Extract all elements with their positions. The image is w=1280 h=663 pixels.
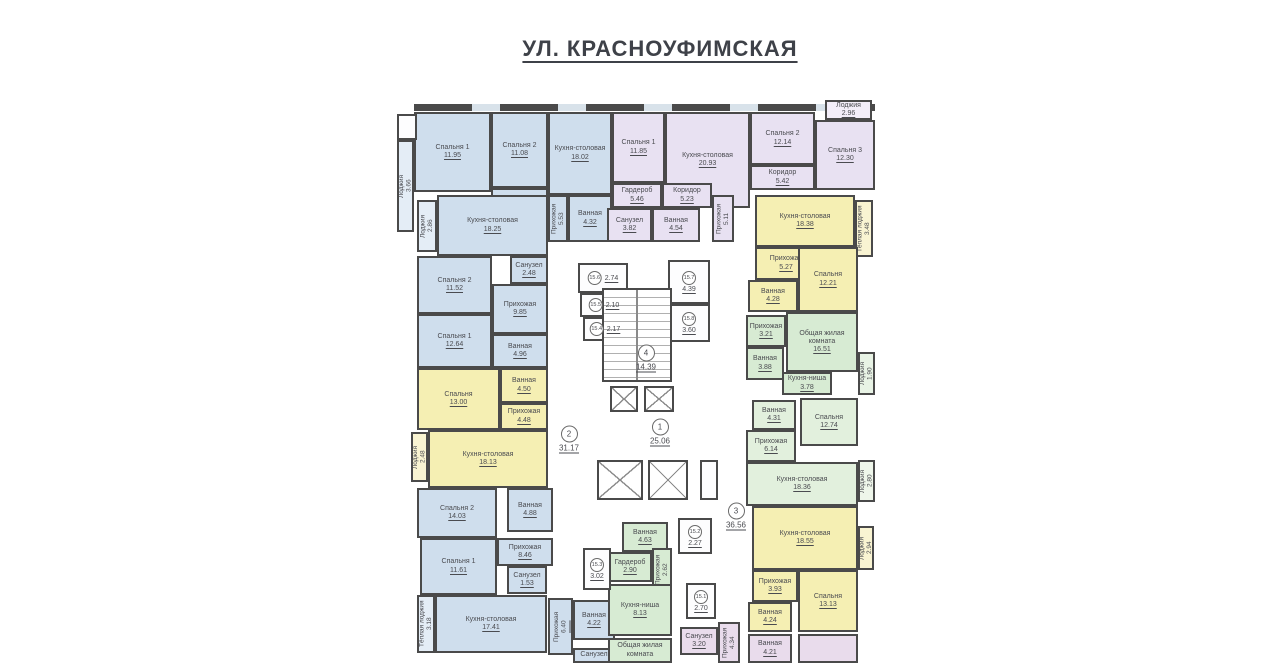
unit-number-circle: 15.8 (682, 312, 696, 326)
room: Тёплая лоджия3.18 (417, 595, 435, 653)
room-name: Прихожая (508, 408, 540, 416)
room-area: 8.13 (633, 610, 647, 618)
room-area: 2.48 (420, 451, 427, 464)
room-label: Кухня-ниша8.13 (610, 586, 670, 634)
room-area: 4.48 (517, 417, 531, 425)
room-label: Коридор5.42 (752, 167, 813, 188)
room-name: Тёплая лоджия (419, 601, 426, 647)
room-label: Прихожая3.21 (748, 317, 784, 345)
room-label: Коридор5.23 (664, 185, 710, 206)
room-label: Кухня-столовая17.41 (437, 597, 545, 651)
room-label: Прихожая3.93 (754, 572, 796, 600)
room-label: Ванная4.21 (750, 636, 790, 661)
room-area: 11.85 (630, 148, 647, 156)
room-area: 3.78 (800, 384, 814, 392)
unit-area-value: 31.17 (559, 444, 579, 453)
room-name: Спальня (815, 414, 843, 422)
storeroom (700, 460, 718, 500)
room-label: Спальня 111.95 (416, 114, 489, 190)
room-name: Ванная (518, 502, 542, 510)
room-area: 17.41 (482, 624, 500, 632)
unit-area-value: 14.39 (636, 363, 656, 372)
room: Ванная4.31 (752, 400, 796, 430)
unit-number-marker: 15.33.02 (590, 558, 604, 580)
room: Санузел3.82 (607, 208, 652, 242)
room-label: Кухня-столовая18.02 (550, 114, 610, 193)
room-label: Прихожая5.11 (714, 197, 732, 240)
room-label: Санузел2.48 (512, 258, 546, 282)
room-area: 4.28 (766, 296, 780, 304)
room-area: 4.54 (669, 225, 683, 233)
room-label: Ванная4.31 (754, 402, 794, 428)
unit-number-circle: 15.5 (589, 298, 603, 312)
room-area: 14.03 (448, 513, 466, 521)
room: Лоджия3.66 (397, 140, 414, 232)
unit-number-circle: 15.7 (682, 271, 696, 285)
room-name: Прихожая (755, 438, 787, 446)
room-name: Ванная (762, 407, 786, 415)
room: Прихожая3.21 (746, 315, 786, 347)
room: Прихожая4.48 (500, 403, 548, 430)
room-name: Тёплая лоджия (857, 205, 864, 251)
room-name: Прихожая (759, 578, 791, 586)
unit-number-marker: 414.39 (636, 345, 656, 372)
room-area: 2.90 (623, 567, 637, 575)
room: Коридор5.23 (662, 183, 712, 208)
room-name: Лоджия (836, 102, 861, 110)
room-label: Кухня-столовая18.36 (748, 464, 856, 504)
elevator-shaft-icon (648, 460, 688, 500)
room-name: Лоджия (859, 362, 866, 385)
elevator-shaft-icon (597, 460, 643, 500)
room-area: 2.86 (427, 220, 434, 233)
unit-area-value: 2.70 (694, 605, 708, 612)
room: Коридор5.42 (750, 165, 815, 190)
unit-number-circle: 15.2 (688, 525, 702, 539)
room: Лоджия2.94 (858, 526, 874, 570)
room-label: Общая жилая комната (610, 640, 670, 661)
room: Лоджия1.90 (858, 352, 875, 395)
unit-number-circle: 2 (561, 426, 578, 443)
unit-number-circle: 15.3 (590, 558, 604, 572)
room-label: Лоджия2.80 (860, 462, 873, 500)
room: Гардероб5.46 (612, 183, 662, 208)
room-label: Прихожая9.85 (494, 286, 546, 332)
room-name: Коридор (769, 169, 797, 177)
room-area: 3.66 (406, 180, 413, 193)
room-label: Кухня-столовая18.55 (754, 508, 856, 568)
room: Прихожая6.14 (746, 430, 796, 462)
room-label: Спальня 112.64 (419, 316, 490, 366)
room-area: 18.02 (571, 154, 589, 162)
room-name: Санузел (616, 217, 643, 225)
room-label: Спальня 212.14 (752, 114, 813, 163)
room-area: 4.88 (523, 510, 537, 518)
room-name: Спальня (814, 593, 842, 601)
room-area: 8.46 (518, 552, 532, 560)
room-name: Спальня 2 (766, 130, 800, 138)
room-name: Кухня-столовая (555, 145, 606, 153)
room-label: Ванная4.54 (654, 210, 698, 240)
room-label: Тёплая лоджия3.18 (419, 597, 433, 651)
room-name: Ванная (758, 609, 782, 617)
room-name: Ванная (758, 640, 782, 648)
room-area: 12.74 (820, 422, 838, 430)
room: Спальня13.00 (417, 368, 500, 430)
room: Общая жилая комната (608, 638, 672, 663)
room-area: 11.08 (511, 150, 528, 158)
room-name: Ванная (753, 355, 777, 363)
room: Ванная4.28 (748, 280, 798, 312)
room-name: Ванная (761, 288, 785, 296)
room-label: Спальня12.74 (802, 400, 856, 444)
room: Спальня 211.08 (491, 112, 548, 188)
room-name: Лоджия (398, 174, 405, 197)
room-area: 4.63 (638, 537, 652, 545)
room-name: Ванная (633, 529, 657, 537)
room: Ванная4.24 (748, 602, 792, 632)
unit-number-circle: 15.6 (588, 271, 602, 285)
room: Гардероб2.90 (608, 552, 652, 582)
room-area: 12.14 (774, 139, 792, 147)
room-name: Кухня-ниша (788, 375, 826, 383)
room-label: Спальня 111.85 (614, 114, 663, 181)
room-name: Санузел (513, 572, 540, 580)
room-name: Кухня-столовая (780, 530, 831, 538)
room-name: Прихожая (750, 323, 782, 331)
room-name: Спальня 2 (503, 142, 537, 150)
room: Прихожая5.11 (712, 195, 734, 242)
room-label: Лоджия2.96 (827, 102, 870, 118)
room-name: Ванная (508, 343, 532, 351)
unit-area-value: 36.56 (726, 521, 746, 530)
unit-number-marker: 231.17 (559, 426, 579, 453)
room: Кухня-столовая17.41 (435, 595, 547, 653)
room: Кухня-столовая18.36 (746, 462, 858, 506)
room-label: Ванная4.88 (509, 490, 551, 530)
room: Ванная4.88 (507, 488, 553, 532)
room: Кухня-ниша3.78 (782, 372, 832, 395)
room-name: Кухня-столовая (466, 616, 517, 624)
room-area: 12.21 (819, 280, 837, 288)
room-label: Спальня 312.30 (817, 122, 873, 188)
elevator-shaft-icon (610, 386, 638, 412)
room-area: 4.31 (767, 415, 781, 423)
room-patch (397, 114, 417, 140)
room: Ванная4.96 (492, 334, 548, 368)
room-label: Прихожая6.14 (748, 432, 794, 460)
unit-number-marker: 15.83.60 (682, 312, 696, 334)
room-name: Ванная (582, 612, 606, 620)
unit-area-value: 2.17 (607, 326, 621, 333)
room-label: Ванная4.63 (624, 524, 666, 550)
room-area: 5.53 (558, 212, 565, 225)
room-label: Прихожая8.46 (499, 540, 551, 564)
room-name: Санузел (515, 262, 542, 270)
room-name: Общая жилая комната (611, 642, 669, 658)
room-area: 11.95 (444, 152, 461, 160)
room-label: Кухня-столовая18.38 (757, 197, 853, 245)
room-name: Кухня-столовая (780, 213, 831, 221)
room-label: Кухня-столовая18.25 (439, 197, 546, 254)
room: Кухня-столовая18.02 (548, 112, 612, 195)
floor-plan-page: УЛ. КРАСНОУФИМСКАЯ Лоджия3.66Спальня 111… (0, 0, 1280, 663)
room-area: 20.93 (699, 160, 717, 168)
room: Ванная4.50 (500, 368, 548, 403)
room-name: Лоджия (859, 469, 866, 492)
room: Спальня13.13 (798, 570, 858, 632)
room-name: Лоджия (412, 445, 419, 468)
floor-plan: Лоджия3.66Спальня 111.95Спальня 211.08Ку… (0, 0, 1280, 663)
room-area: 3.82 (623, 225, 637, 233)
room-area: 13.00 (450, 399, 468, 407)
unit-number-marker: 15.74.39 (682, 271, 696, 293)
room-name: Кухня-столовая (682, 152, 733, 160)
room-name: Гардероб (622, 187, 653, 195)
unit-number-marker: 336.56 (726, 503, 746, 530)
unit-number-marker: 15.42.17 (590, 322, 621, 336)
room-patch (798, 634, 858, 663)
room-area: 4.22 (587, 620, 601, 628)
room-area: 3.93 (768, 586, 782, 594)
room-name: Спальня 2 (438, 277, 472, 285)
unit-number-marker: 15.52.10 (589, 298, 620, 312)
room-name: Гардероб (615, 559, 646, 567)
room-name: Спальня (814, 271, 842, 279)
room-area: 1.53 (520, 580, 534, 588)
room-area: 5.23 (680, 196, 694, 204)
room: Кухня-столовая18.55 (752, 506, 858, 570)
room: Санузел1.53 (507, 566, 547, 594)
room-name: Прихожая (553, 611, 560, 641)
room-label: Спальня12.21 (800, 249, 856, 310)
room-area: 18.25 (484, 226, 502, 234)
elevator-shaft-icon (644, 386, 674, 412)
unit-area-value: 4.39 (682, 286, 696, 293)
room-label: Общая жилая комната16.51 (788, 314, 856, 370)
room-area: 13.13 (819, 601, 837, 609)
room-label: Спальня13.00 (419, 370, 498, 428)
room-area: 1.90 (867, 367, 874, 380)
room: Прихожая4.34 (718, 622, 740, 663)
room-name: Кухня-ниша (621, 602, 659, 610)
room-area: 4.34 (729, 636, 736, 649)
unit-number-circle: 3 (728, 503, 745, 520)
room-area: 3.20 (692, 641, 706, 649)
room-name: Санузел (685, 633, 712, 641)
room-area: 9.85 (513, 309, 527, 317)
room-name: Кухня-столовая (463, 451, 514, 459)
room-label: Спальня 211.08 (493, 114, 546, 186)
room: Лоджия2.48 (411, 432, 428, 482)
room-label: Прихожая6.40 (550, 600, 571, 653)
room-label: Лоджия3.66 (399, 142, 412, 230)
room-label: Кухня-столовая18.13 (430, 432, 546, 486)
room-area: 2.62 (662, 564, 669, 577)
room-name: Коридор (673, 187, 701, 195)
room: Санузел2.48 (510, 256, 548, 284)
room-area: 4.96 (513, 351, 527, 359)
room-label: Лоджия2.48 (413, 434, 426, 480)
room-area: 2.48 (522, 270, 536, 278)
room: Спальня 312.30 (815, 120, 875, 190)
room-name: Спальня 3 (828, 147, 862, 155)
unit-number-marker: 15.22.27 (688, 525, 702, 547)
room-label: Санузел1.53 (509, 568, 545, 592)
room: Прихожая6.40 (548, 598, 573, 655)
room-area: 2.96 (842, 110, 856, 118)
room: Спальня 211.52 (417, 256, 492, 314)
room: Лоджия2.86 (417, 200, 437, 252)
room: Кухня-столовая18.13 (428, 430, 548, 488)
room-area: 4.50 (517, 386, 531, 394)
room-label: Ванная4.24 (750, 604, 790, 630)
room-name: Спальня 1 (442, 558, 476, 566)
unit-number-circle: 15.1 (694, 590, 708, 604)
room-label: Лоджия1.90 (860, 354, 873, 393)
unit-area-value: 2.27 (688, 540, 702, 547)
unit-area-value: 25.06 (650, 437, 670, 446)
room-label: Ванная4.96 (494, 336, 546, 366)
room-name: Прихожая (722, 627, 729, 657)
room-area: 6.40 (561, 620, 568, 633)
room-name: Прихожая (655, 555, 662, 585)
room-area: 4.32 (583, 219, 597, 227)
room-label: Прихожая4.34 (720, 624, 738, 661)
room-label: Лоджия2.86 (419, 202, 435, 250)
room-label: Прихожая4.48 (502, 405, 546, 428)
room: Санузел3.20 (680, 627, 718, 655)
room-area: 3.88 (758, 364, 772, 372)
room-area: 2.80 (867, 475, 874, 488)
room-label: Гардероб2.90 (610, 554, 650, 580)
unit-number-circle: 4 (638, 345, 655, 362)
unit-number-marker: 15.62.74 (588, 271, 619, 285)
room-name: Спальня 1 (622, 139, 656, 147)
room-label: Спальня13.13 (800, 572, 856, 630)
room-area: 12.64 (446, 341, 464, 349)
unit-area-value: 2.74 (605, 275, 619, 282)
room-label: Санузел3.20 (682, 629, 716, 653)
room: Прихожая3.93 (752, 570, 798, 602)
room-label: Прихожая5.53 (550, 197, 566, 240)
room: Ванная3.88 (746, 347, 784, 380)
room-area: 11.52 (446, 285, 463, 293)
room-name: Спальня 1 (438, 333, 472, 341)
room-label: Кухня-ниша3.78 (784, 374, 830, 393)
room-area: 5.46 (630, 196, 644, 204)
unit-number-circle: 1 (652, 419, 669, 436)
room: Спальня 212.14 (750, 112, 815, 165)
room-name: Прихожая (551, 203, 558, 233)
room: Ванная4.21 (748, 634, 792, 663)
room-area: 18.38 (796, 221, 814, 229)
room: Спальня 111.85 (612, 112, 665, 183)
exterior-wall (414, 104, 875, 111)
room-area: 12.30 (836, 155, 854, 163)
room-name: Спальня 2 (440, 505, 474, 513)
room: Спальня 111.61 (420, 538, 497, 595)
room-area: 18.36 (793, 484, 811, 492)
room-area: 4.24 (763, 617, 777, 625)
room-name: Санузел (580, 651, 607, 659)
room: Ванная4.54 (652, 208, 700, 242)
room-label: Ванная4.28 (750, 282, 796, 310)
room-label: Ванная4.32 (570, 197, 610, 240)
room-name: Ванная (578, 210, 602, 218)
unit-area-value: 3.60 (682, 327, 696, 334)
room: Спальня 111.95 (414, 112, 491, 192)
room-area: 18.13 (479, 459, 497, 467)
room-area: 3.21 (759, 331, 773, 339)
room: Спальня12.21 (798, 247, 858, 312)
room-area: 18.55 (796, 538, 814, 546)
room-label: Лоджия2.94 (860, 528, 872, 568)
room-label: Ванная4.50 (502, 370, 546, 401)
room-area: 3.18 (426, 618, 433, 631)
room: Спальня12.74 (800, 398, 858, 446)
room: Лоджия2.96 (825, 100, 872, 120)
room-label: Спальня 211.52 (419, 258, 490, 312)
room: Прихожая8.46 (497, 538, 553, 566)
room: Ванная4.32 (568, 195, 612, 242)
room: Прихожая5.53 (548, 195, 568, 242)
room-area: 5.42 (776, 178, 790, 186)
room-area: 6.14 (764, 446, 778, 454)
room-area: 5.11 (723, 212, 730, 224)
room: Кухня-столовая18.38 (755, 195, 855, 247)
room: Прихожая9.85 (492, 284, 548, 334)
room-name: Лоджия (859, 536, 866, 559)
room-area: 4.21 (763, 649, 777, 657)
room-area: 3.48 (864, 222, 871, 235)
room-label: Гардероб5.46 (614, 185, 660, 206)
room-area: 2.94 (866, 542, 873, 555)
room-label: Спальня 111.61 (422, 540, 495, 593)
unit-number-circle: 15.4 (590, 322, 604, 336)
room: Кухня-ниша8.13 (608, 584, 672, 636)
room-name: Спальня 1 (436, 144, 470, 152)
room-name: Кухня-столовая (467, 217, 518, 225)
room-name: Лоджия (420, 214, 427, 237)
room: Лоджия2.80 (858, 460, 875, 502)
room-name: Кухня-столовая (777, 476, 828, 484)
room: Кухня-столовая18.25 (437, 195, 548, 256)
unit-number-marker: 125.06 (650, 419, 670, 446)
room-area: 16.51 (813, 346, 831, 354)
unit-number-marker: 15.12.70 (694, 590, 708, 612)
room-label: Ванная3.88 (748, 349, 782, 378)
room-name: Ванная (664, 217, 688, 225)
room-name: Прихожая (504, 301, 536, 309)
room-name: Спальня (444, 391, 472, 399)
room-label: Спальня 214.03 (419, 490, 495, 536)
room-name: Общая жилая комната (789, 330, 855, 346)
room-name: Ванная (512, 377, 536, 385)
room-name: Прихожая (509, 544, 541, 552)
room: Общая жилая комната16.51 (786, 312, 858, 372)
room-name: Прихожая (716, 203, 723, 233)
room-label: Санузел3.82 (609, 210, 650, 240)
room-area: 11.61 (450, 567, 467, 575)
room: Спальня 214.03 (417, 488, 497, 538)
room: Спальня 112.64 (417, 314, 492, 368)
room-label: Тёплая лоджия3.48 (857, 202, 871, 255)
room-area: 5.27 (779, 264, 793, 272)
unit-area-value: 2.10 (606, 302, 620, 309)
unit-area-value: 3.02 (590, 573, 604, 580)
